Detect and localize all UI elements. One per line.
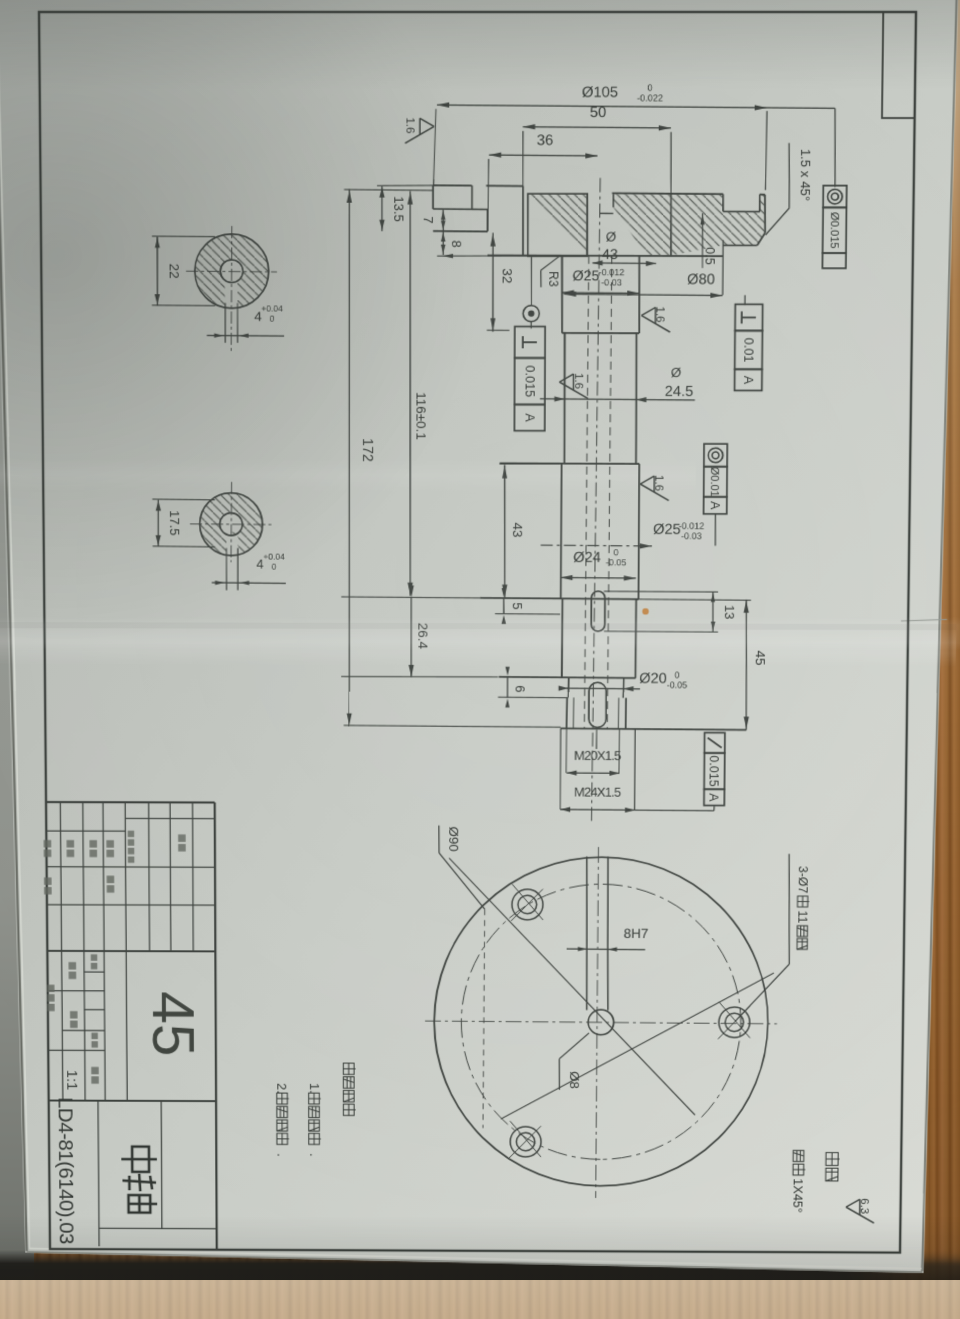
svg-text:0: 0 <box>272 562 277 572</box>
svg-text:45: 45 <box>752 650 768 665</box>
svg-text:-0.012: -0.012 <box>679 521 705 531</box>
svg-text:13.5: 13.5 <box>391 196 406 222</box>
svg-text:1X45°: 1X45° <box>791 1178 806 1213</box>
svg-text:Ø8: Ø8 <box>567 1071 583 1089</box>
svg-text:0.01: 0.01 <box>741 338 756 363</box>
svg-text:2.: 2. <box>275 1083 290 1094</box>
svg-text:A: A <box>708 501 723 510</box>
svg-text:43: 43 <box>602 247 618 263</box>
svg-text:+0.04: +0.04 <box>263 552 285 562</box>
svg-text:0: 0 <box>614 548 619 558</box>
svg-text:43: 43 <box>510 522 526 537</box>
svg-text:13: 13 <box>721 605 736 619</box>
svg-text:A: A <box>741 376 756 385</box>
svg-text:45: 45 <box>139 991 206 1057</box>
svg-text:Ø0.01: Ø0.01 <box>708 467 720 497</box>
svg-text:5: 5 <box>510 602 525 609</box>
svg-text:R3: R3 <box>546 271 560 287</box>
svg-text:0: 0 <box>675 670 680 680</box>
svg-text:8H7: 8H7 <box>624 925 649 940</box>
svg-text:1.6: 1.6 <box>404 117 418 134</box>
svg-text:Ø: Ø <box>671 365 681 380</box>
svg-text:-0.05: -0.05 <box>606 558 627 568</box>
svg-text:0.5: 0.5 <box>702 247 717 265</box>
svg-text:0.015: 0.015 <box>522 365 537 397</box>
svg-text:1.6: 1.6 <box>654 306 668 323</box>
svg-text:Ø25: Ø25 <box>653 522 681 538</box>
svg-text:Ø0.015: Ø0.015 <box>827 212 839 249</box>
svg-text:1.5 x 45°: 1.5 x 45° <box>798 149 813 202</box>
svg-text:Ø: Ø <box>606 229 616 244</box>
svg-text:-0.012: -0.012 <box>599 267 625 277</box>
svg-text:-0.03: -0.03 <box>681 531 702 541</box>
svg-text:-0.05: -0.05 <box>667 680 688 690</box>
svg-text:-0.03: -0.03 <box>601 278 622 288</box>
svg-text:Ø20: Ø20 <box>639 671 667 687</box>
svg-text:0.015: 0.015 <box>707 756 722 787</box>
svg-text:36: 36 <box>537 133 553 149</box>
svg-text:11: 11 <box>795 910 810 923</box>
svg-text:3-Ø7: 3-Ø7 <box>795 866 810 893</box>
svg-text:Ø105: Ø105 <box>582 85 618 101</box>
svg-text:A: A <box>522 413 537 422</box>
svg-text:0: 0 <box>647 83 652 93</box>
svg-text:6: 6 <box>513 685 528 692</box>
svg-text:+0.04: +0.04 <box>261 304 283 314</box>
svg-text:6.3: 6.3 <box>858 1198 872 1214</box>
svg-text:1:1: 1:1 <box>63 1070 80 1090</box>
svg-text:26.4: 26.4 <box>415 623 431 650</box>
svg-text:.: . <box>307 1153 321 1157</box>
svg-text:LD4-81(6140).03: LD4-81(6140).03 <box>54 1097 79 1244</box>
svg-text:17.5: 17.5 <box>167 510 182 535</box>
svg-text:A: A <box>707 793 722 802</box>
svg-text:8: 8 <box>449 240 464 247</box>
svg-text:172: 172 <box>359 438 375 462</box>
svg-text:7: 7 <box>421 216 436 223</box>
svg-text:-0.022: -0.022 <box>637 93 663 103</box>
svg-text:Ø90: Ø90 <box>446 826 462 852</box>
svg-text:116±0.1: 116±0.1 <box>413 392 429 440</box>
svg-text:24.5: 24.5 <box>665 384 694 400</box>
svg-text:0: 0 <box>270 314 275 324</box>
svg-text:1.: 1. <box>307 1083 322 1094</box>
svg-text:Ø24: Ø24 <box>573 550 601 566</box>
svg-text:50: 50 <box>590 105 606 121</box>
svg-text:22: 22 <box>167 263 183 278</box>
svg-text:.: . <box>275 1153 289 1157</box>
svg-text:32: 32 <box>500 268 516 283</box>
svg-text:1.6: 1.6 <box>572 373 586 390</box>
svg-text:M24X1.5: M24X1.5 <box>574 785 621 800</box>
svg-text:Ø80: Ø80 <box>687 272 715 288</box>
svg-text:M20X1.5: M20X1.5 <box>574 748 621 763</box>
svg-text:1.6: 1.6 <box>652 475 666 492</box>
svg-text:Ø25: Ø25 <box>573 269 600 285</box>
